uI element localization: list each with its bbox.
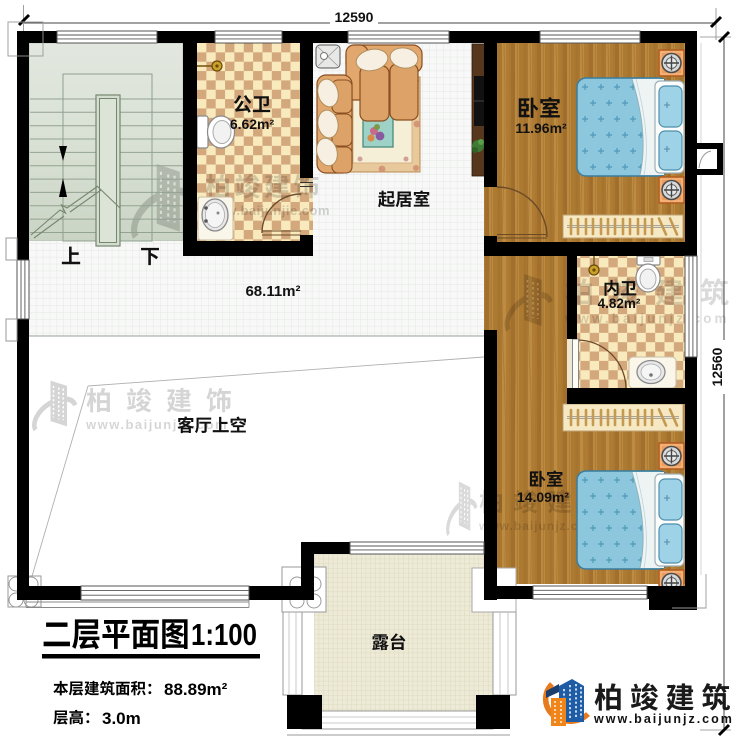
svg-text:3.0m: 3.0m: [102, 709, 141, 728]
svg-text:6.62m²: 6.62m²: [230, 116, 275, 132]
svg-text:14.09m²: 14.09m²: [517, 489, 569, 505]
svg-text:88.89m²: 88.89m²: [164, 680, 228, 699]
svg-text:11.96m²: 11.96m²: [515, 120, 567, 136]
svg-text:12590: 12590: [335, 9, 374, 25]
svg-text:1:100: 1:100: [191, 617, 257, 652]
svg-text:www.baijunjz.com: www.baijunjz.com: [564, 311, 730, 326]
svg-text:68.11m²: 68.11m²: [245, 283, 300, 300]
svg-text:www.baijunjz.com: www.baijunjz.com: [593, 712, 734, 726]
svg-text:12560: 12560: [709, 347, 725, 386]
svg-text:4.82m²: 4.82m²: [598, 296, 641, 311]
